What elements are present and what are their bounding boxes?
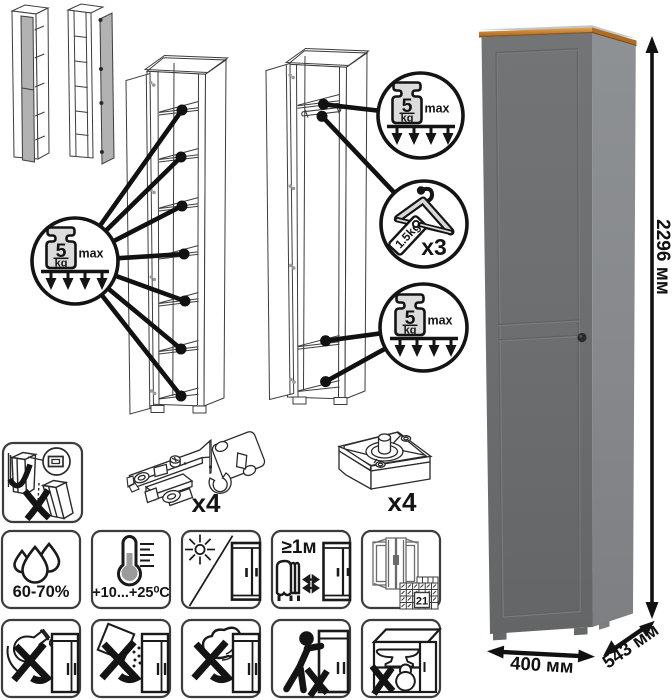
svg-text:2296 мм: 2296 мм (652, 219, 672, 295)
svg-text:≥1м: ≥1м (281, 537, 316, 558)
svg-text:400 мм: 400 мм (510, 652, 575, 677)
svg-text:x3: x3 (421, 234, 447, 260)
svg-text:60-70%: 60-70% (13, 583, 70, 601)
svg-text:21: 21 (416, 596, 428, 608)
svg-text:+10...+25⁰C: +10...+25⁰C (92, 585, 170, 601)
svg-text:x4: x4 (388, 487, 417, 517)
svg-text:x4: x4 (192, 488, 221, 518)
